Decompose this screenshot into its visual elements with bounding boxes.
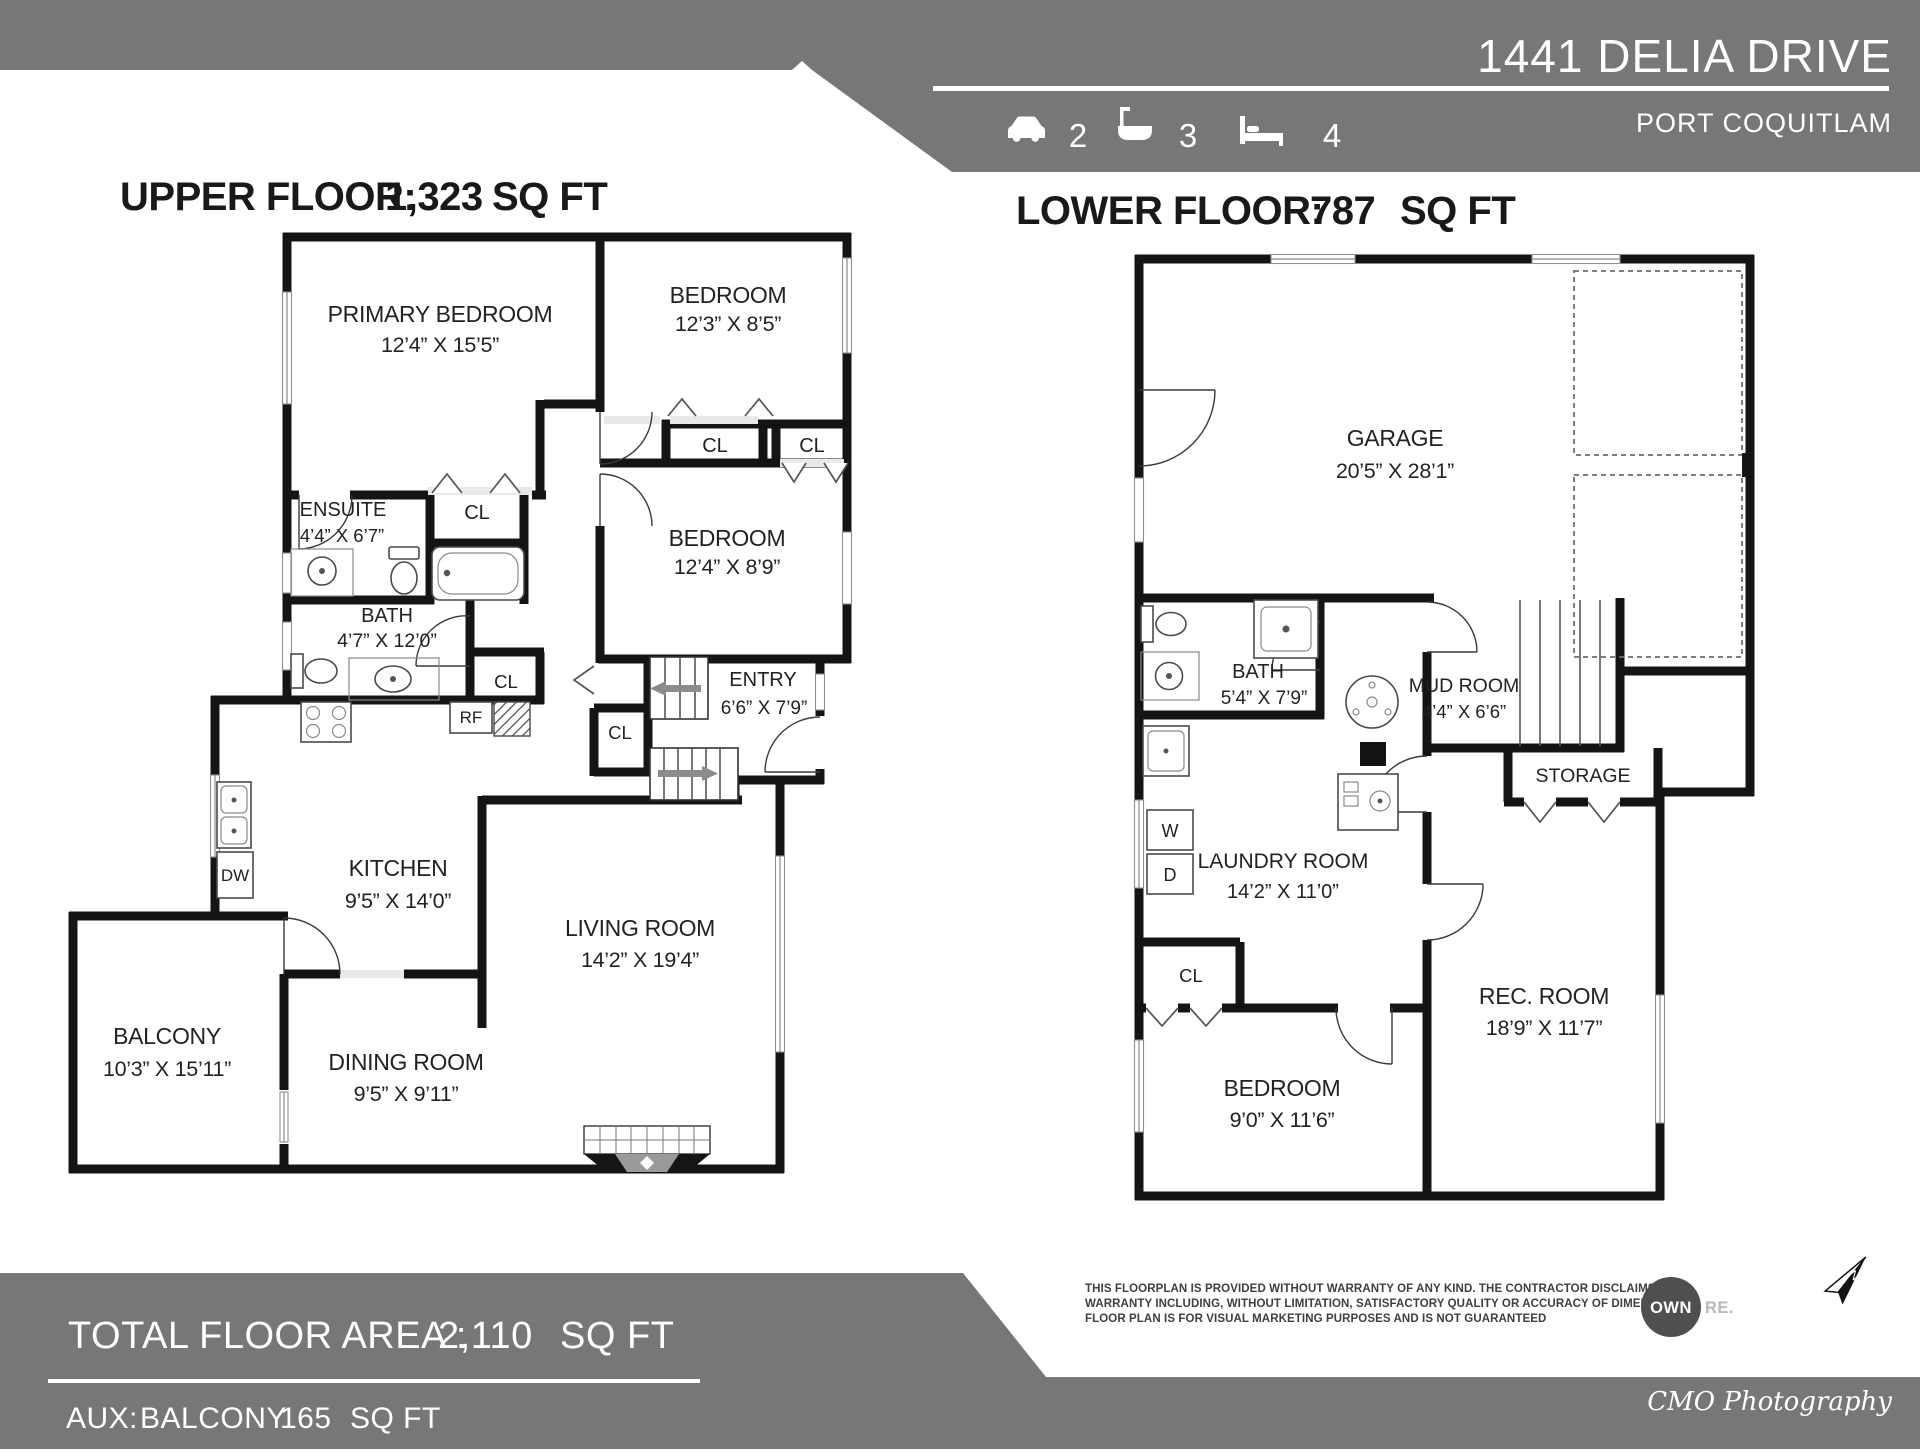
lower-toilet-tank [1141, 606, 1153, 642]
room-label-balcony: BALCONY [113, 1023, 221, 1049]
closet-label-1: CL [702, 435, 728, 457]
room-dims-primary-bedroom: 12’4” X 15’5” [381, 333, 499, 357]
closet-label-2: CL [799, 435, 825, 457]
closet-label-5: CL [608, 722, 632, 743]
bath-toilet-tank [291, 654, 303, 688]
disclaimer-line-1: THIS FLOORPLAN IS PROVIDED WITHOUT WARRA… [1085, 1283, 1683, 1295]
lower-floor-plan: LOWER FLOOR: 787 SQ FT [1016, 189, 1754, 1200]
ownre-logo-own: OWN [1650, 1299, 1692, 1317]
header-separator [933, 86, 1889, 91]
room-label-primary-bedroom: PRIMARY BEDROOM [328, 301, 553, 327]
upper-floor-area: 1,323 [385, 175, 483, 219]
disclaimer-line-3: FLOOR PLAN IS FOR VISUAL MARKETING PURPO… [1085, 1313, 1546, 1325]
total-area-label: TOTAL FLOOR AREA : [68, 1315, 467, 1357]
bath-toilet [305, 659, 337, 683]
aux-value: 165 [280, 1402, 332, 1435]
property-address: 1441 DELIA DRIVE [1477, 30, 1892, 82]
shower-drain [1283, 626, 1290, 633]
room-dims-garage: 20’5” X 28’1” [1336, 459, 1454, 483]
room-label-ensuite: ENSUITE [300, 499, 387, 521]
room-label-storage: STORAGE [1536, 765, 1631, 787]
room-dims-ensuite: 4’4” X 6’7” [300, 525, 384, 546]
aux-unit: SQ FT [350, 1402, 441, 1435]
room-label-garage: GARAGE [1347, 425, 1444, 451]
room-label-bedroom-3: BEDROOM [669, 525, 786, 551]
room-dims-balcony: 10’3” X 15’11” [103, 1057, 231, 1081]
stairs-up-arrow [665, 685, 701, 692]
footer-banner: TOTAL FLOOR AREA : 2,110 SQ FT AUX: BALC… [0, 1250, 1920, 1449]
chimney-shaft [494, 702, 530, 736]
total-area-unit: SQ FT [560, 1315, 674, 1357]
ensuite-toilet-tank [389, 547, 419, 559]
lower-stairs [1520, 600, 1600, 746]
room-label-rec-room: REC. ROOM [1479, 983, 1609, 1009]
upper-floor-title: UPPER FLOOR: [120, 175, 416, 219]
room-label-kitchen: KITCHEN [349, 855, 448, 881]
photography-credit: CMO Photography [1647, 1387, 1892, 1417]
room-dims-living-room: 14’2” X 19’4” [581, 948, 699, 972]
kitchen-sink [217, 782, 251, 848]
lower-toilet [1156, 613, 1186, 636]
room-dims-rec-room: 18’9” X 11’7” [1486, 1016, 1603, 1040]
stairs-down-arrow [658, 770, 702, 777]
room-label-mud-room: MUD ROOM [1409, 675, 1520, 697]
room-dims-lower-bedroom: 9’0” X 11’6” [1230, 1108, 1335, 1132]
dryer-label: D [1164, 865, 1177, 885]
room-label-bedroom-2: BEDROOM [670, 282, 787, 308]
property-city: PORT COQUITLAM [1636, 108, 1892, 138]
footer-separator [48, 1379, 700, 1383]
upper-floor-plan: UPPER FLOOR: 1,323 SQ FT [69, 175, 852, 1173]
room-dims-bath: 4’7” X 12’0” [337, 630, 437, 652]
furnace [1346, 676, 1398, 728]
room-label-bath: BATH [361, 605, 413, 627]
room-label-dining-room: DINING ROOM [328, 1049, 483, 1075]
ownre-logo-re: RE. [1705, 1299, 1734, 1317]
bath-count: 3 [1179, 117, 1197, 154]
compass-icon: N [1825, 1250, 1874, 1305]
total-area-value: 2,110 [438, 1315, 533, 1357]
lower-floor-area: 787 [1310, 189, 1375, 233]
room-dims-mud-room: 4’4” X 6’6” [1422, 701, 1506, 722]
bed-count: 4 [1323, 117, 1341, 154]
tub-faucet [444, 570, 450, 576]
room-label-entry: ENTRY [729, 669, 796, 691]
closet-label-4: CL [494, 671, 518, 692]
room-label-lower-bedroom: BEDROOM [1224, 1075, 1341, 1101]
header-banner: 1441 DELIA DRIVE PORT COQUITLAM 2 3 4 [0, 0, 1920, 172]
room-dims-entry: 6’6” X 7’9” [721, 698, 808, 719]
lower-floor-title: LOWER FLOOR: [1016, 189, 1323, 233]
dishwasher-label: DW [221, 866, 249, 885]
disclaimer-line-2: WARRANTY INCLUDING, WITHOUT LIMITATION, … [1085, 1298, 1689, 1310]
room-dims-lower-bath: 5’4” X 7’9” [1221, 688, 1308, 709]
fridge-label: RF [460, 708, 483, 727]
ensuite-toilet [391, 562, 417, 594]
garage-parking-stalls [1574, 271, 1752, 657]
aux-name: BALCONY [140, 1402, 287, 1435]
upper-floor-area-unit: SQ FT [492, 175, 607, 219]
room-label-lower-bath: BATH [1232, 661, 1284, 683]
room-dims-dining-room: 9’5” X 9’11” [354, 1082, 459, 1106]
room-label-laundry: LAUNDRY ROOM [1198, 850, 1369, 873]
room-dims-laundry: 14’2” X 11’0” [1227, 881, 1339, 903]
ownre-logo: OWN RE. [1641, 1277, 1734, 1337]
room-label-living-room: LIVING ROOM [565, 915, 715, 941]
garage-count: 2 [1069, 117, 1087, 154]
room-dims-bedroom-3: 12’4” X 8’9” [674, 555, 780, 579]
floorplan-sheet: 1441 DELIA DRIVE PORT COQUITLAM 2 3 4 UP… [0, 0, 1920, 1449]
aux-label: AUX: [66, 1402, 138, 1435]
upper-stairs [650, 657, 738, 800]
room-dims-bedroom-2: 12’3” X 8’5” [675, 312, 781, 336]
fireplace [584, 1126, 710, 1172]
mech-unit [1360, 742, 1386, 766]
lower-floor-area-unit: SQ FT [1400, 189, 1515, 233]
lower-closet-label: CL [1179, 965, 1203, 986]
washer-label: W [1162, 821, 1179, 841]
closet-label-3: CL [464, 502, 490, 524]
room-dims-kitchen: 9’5” X 14’0” [345, 889, 451, 913]
